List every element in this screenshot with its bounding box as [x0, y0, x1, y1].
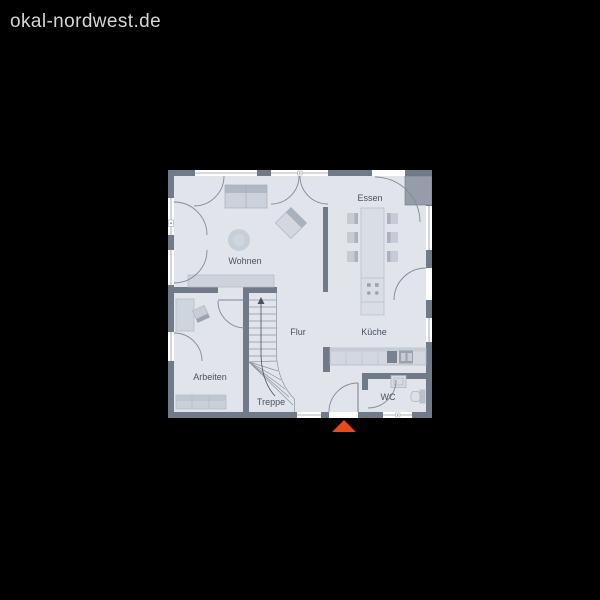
room-label-essen: Essen [357, 193, 382, 203]
lowboard [176, 395, 226, 409]
canvas: okal-nordwest.de [0, 0, 600, 600]
room-label-flur: Flur [290, 327, 306, 337]
stove-icon [387, 351, 397, 363]
entrance-marker-icon [332, 420, 356, 432]
kitchen-island [361, 208, 384, 315]
kitchen-counter [330, 348, 426, 365]
corner-block [405, 176, 432, 205]
room-label-treppe: Treppe [257, 397, 285, 407]
sofa [225, 185, 267, 208]
room-label-kueche: Küche [361, 327, 387, 337]
wc-sink [391, 376, 406, 388]
floor-plan: Wohnen Essen Küche Flur Arbeiten Treppe … [168, 170, 432, 418]
sideboard [188, 275, 274, 287]
wc-toilet [411, 390, 426, 404]
sink-icon [399, 351, 413, 364]
rug [228, 229, 250, 251]
room-label-arbeiten: Arbeiten [193, 372, 227, 382]
desk [176, 299, 194, 331]
room-label-wohnen: Wohnen [228, 256, 261, 266]
room-label-wc: WC [381, 392, 396, 402]
site-watermark: okal-nordwest.de [10, 11, 161, 33]
